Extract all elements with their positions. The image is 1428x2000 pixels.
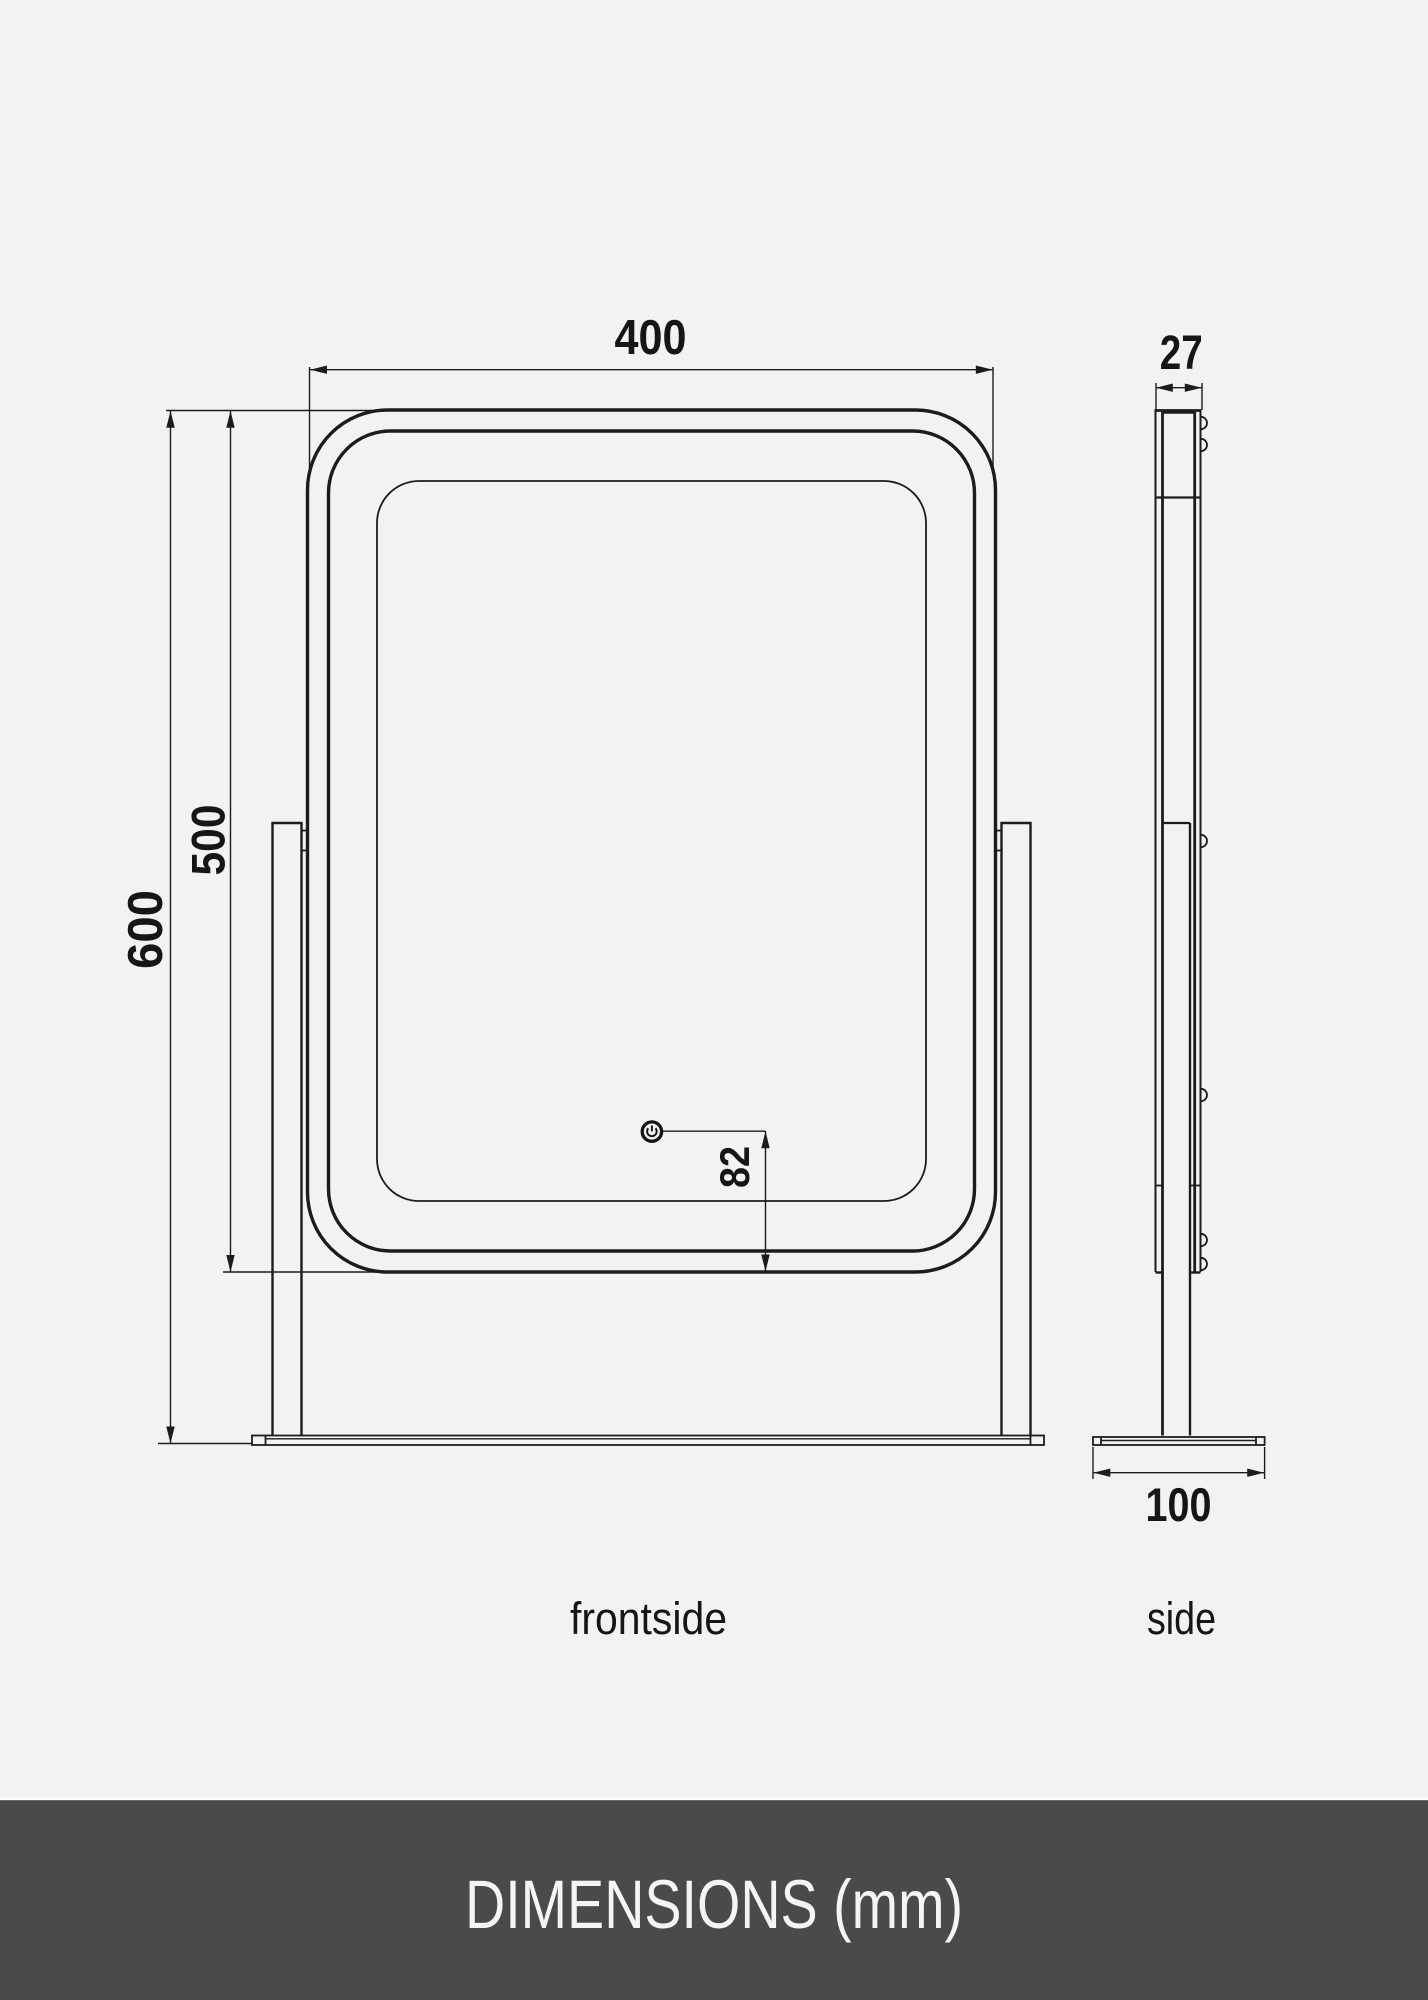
svg-text:600: 600 bbox=[119, 890, 173, 969]
svg-text:400: 400 bbox=[615, 311, 687, 365]
svg-text:DIMENSIONS (mm): DIMENSIONS (mm) bbox=[465, 1866, 963, 1943]
svg-text:500: 500 bbox=[182, 805, 235, 876]
svg-text:frontside: frontside bbox=[570, 1593, 727, 1644]
svg-text:100: 100 bbox=[1146, 1478, 1212, 1531]
svg-text:side: side bbox=[1147, 1593, 1216, 1644]
svg-text:82: 82 bbox=[711, 1146, 758, 1188]
svg-text:27: 27 bbox=[1160, 327, 1203, 380]
